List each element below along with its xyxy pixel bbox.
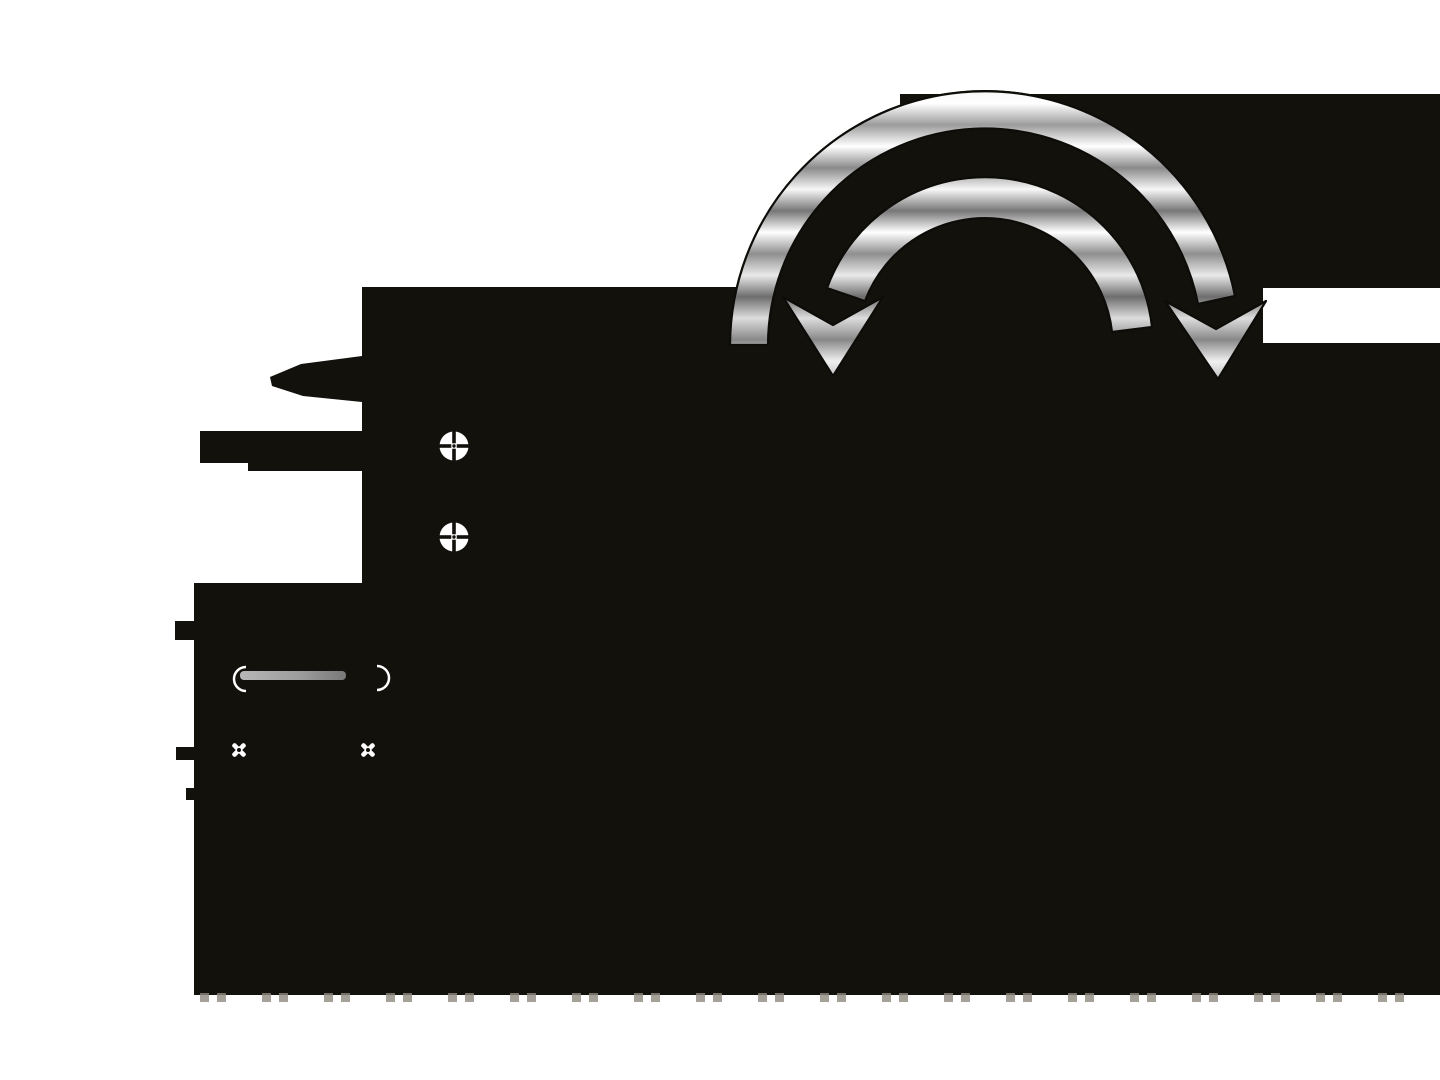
foot-tick (279, 993, 288, 1002)
foot-tick (448, 993, 457, 1002)
rod-shaft (240, 671, 346, 680)
foot-tick (651, 993, 660, 1002)
foot-tick (510, 993, 519, 1002)
foot-tick (899, 993, 908, 1002)
appliance-illustration (0, 0, 1440, 1080)
foot-tick (465, 993, 474, 1002)
foot-tick (1254, 993, 1263, 1002)
foot-tick (1271, 993, 1280, 1002)
foot-tick (341, 993, 350, 1002)
main-body (362, 287, 1440, 995)
foot-tick (1209, 993, 1218, 1002)
foot-tick (262, 993, 271, 1002)
foot-tick (758, 993, 767, 1002)
lid-gap-slit (1263, 288, 1440, 343)
foot-tick (403, 993, 412, 1002)
foot-tick (713, 993, 722, 1002)
foot-tick (572, 993, 581, 1002)
foot-tick (386, 993, 395, 1002)
foot-tick (634, 993, 643, 1002)
foot-tick (1068, 993, 1077, 1002)
foot-tick (200, 993, 209, 1002)
foot-tick (837, 993, 846, 1002)
foot-tick (1147, 993, 1156, 1002)
left-hinge-tab-3 (186, 788, 203, 800)
left-hinge-tab-2 (176, 747, 195, 760)
foot-tick (1395, 993, 1404, 1002)
foot-tick (527, 993, 536, 1002)
foot-tick (775, 993, 784, 1002)
foot-tick (1316, 993, 1325, 1002)
foot-tick (1333, 993, 1342, 1002)
foot-tick (324, 993, 333, 1002)
foot-tick (589, 993, 598, 1002)
foot-tick (882, 993, 891, 1002)
foot-tick (944, 993, 953, 1002)
foot-tick (1006, 993, 1015, 1002)
foot-tick (820, 993, 829, 1002)
left-arm-band-lower (248, 455, 362, 471)
foot-tick (217, 993, 226, 1002)
foot-tick (1130, 993, 1139, 1002)
foot-tick (961, 993, 970, 1002)
illustration-canvas (0, 0, 1440, 1080)
foot-tick (1378, 993, 1387, 1002)
foot-tick (1023, 993, 1032, 1002)
left-hinge-tab-1 (175, 621, 199, 640)
foot-tick (696, 993, 705, 1002)
lower-left-panel (194, 583, 364, 995)
foot-tick (1192, 993, 1201, 1002)
foot-tick (1085, 993, 1094, 1002)
